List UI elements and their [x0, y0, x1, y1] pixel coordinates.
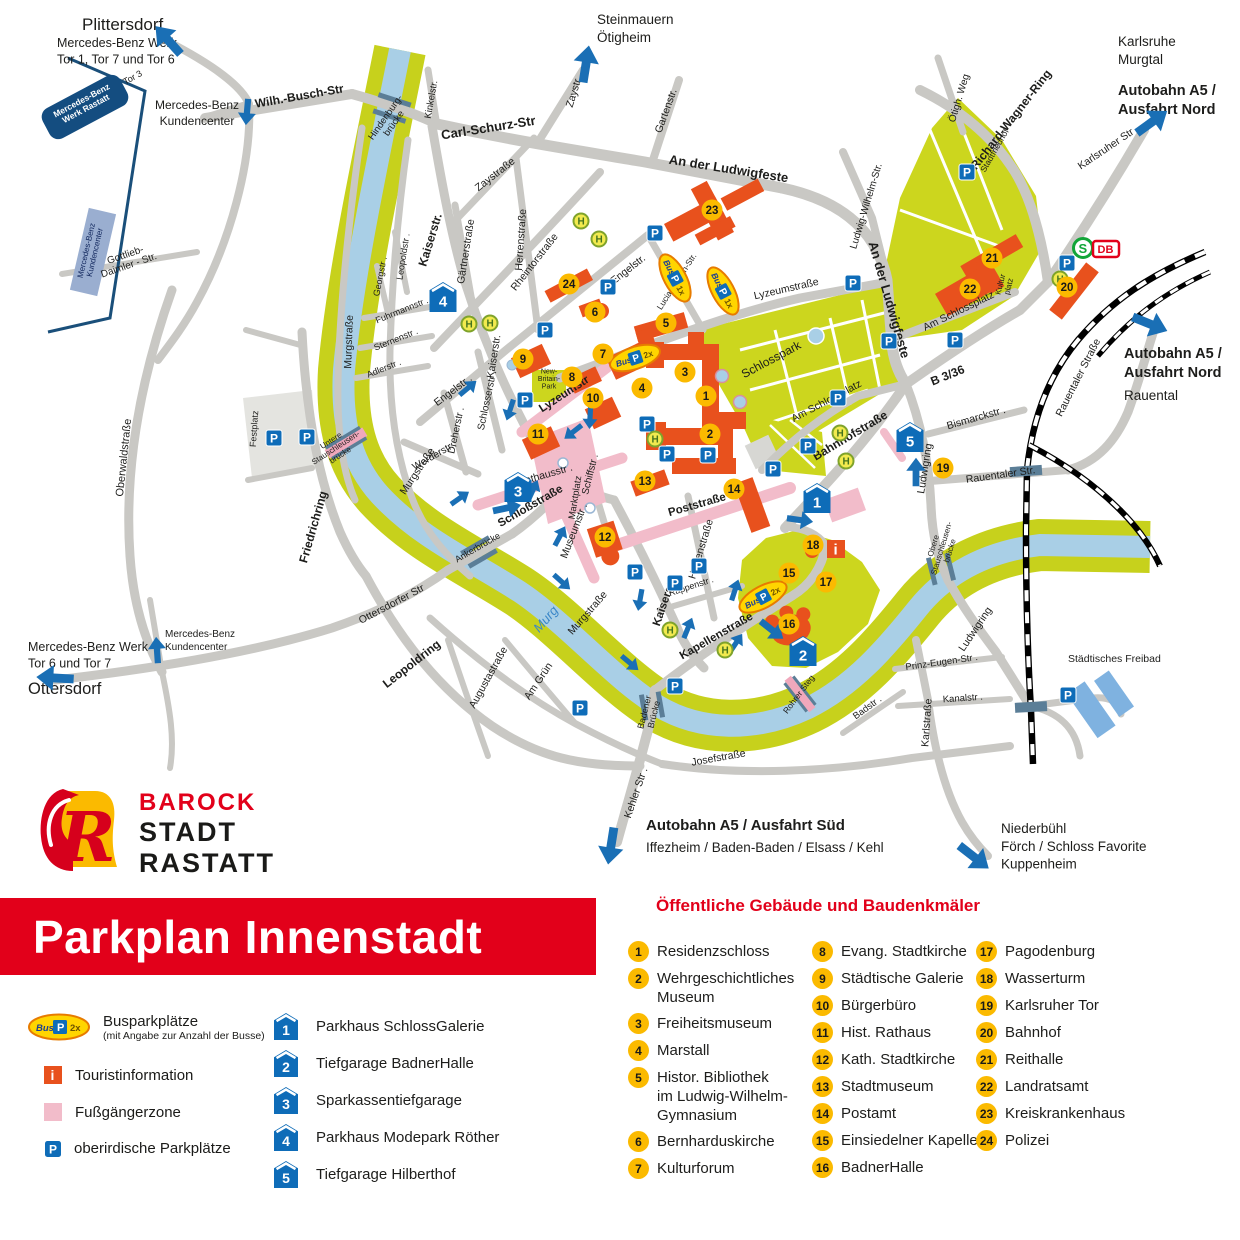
building-number-badge: 4	[628, 1040, 649, 1061]
parking-icon: P	[1059, 255, 1075, 271]
direction-arrow	[447, 486, 474, 511]
poi-marker: 17	[816, 572, 837, 593]
svg-text:P: P	[270, 432, 278, 446]
svg-text:22: 22	[964, 284, 977, 296]
building-number-badge: 10	[812, 995, 833, 1016]
svg-text:2: 2	[799, 648, 807, 665]
building-number-badge: 12	[812, 1049, 833, 1070]
svg-text:H: H	[722, 646, 729, 657]
legend-garages: 1Parkhaus SchlossGalerie2Tiefgarage Badn…	[273, 1008, 499, 1193]
building-name: Evang. Stadtkirche	[841, 941, 967, 961]
poi-marker: 20	[1057, 277, 1078, 298]
legend-garage-label: Tiefgarage BadnerHalle	[316, 1055, 474, 1072]
svg-text:1: 1	[282, 1022, 290, 1038]
legend-parking-label: oberirdische Parkplätze	[74, 1140, 231, 1157]
tourist-info-icon: i	[44, 1066, 62, 1084]
svg-text:3: 3	[682, 367, 688, 379]
street-label: Zaystraße	[473, 155, 518, 194]
building-list-item: 12Kath. Stadtkirche	[812, 1049, 987, 1070]
buildings-column-2: 8Evang. Stadtkirche9Städtische Galerie10…	[812, 941, 987, 1184]
svg-text:P: P	[671, 577, 679, 591]
building-name: Residenzschloss	[657, 941, 770, 961]
svg-text:H: H	[843, 457, 850, 468]
svg-text:P: P	[834, 392, 842, 406]
destination-label: Autobahn A5 /Ausfahrt Nord	[1124, 346, 1222, 381]
parking-garage-icon: 4	[430, 282, 457, 312]
title-band: Parkplan Innenstadt	[0, 898, 596, 975]
building-list-item: 22Landratsamt	[976, 1076, 1166, 1097]
svg-text:2: 2	[282, 1059, 290, 1075]
parking-icon: P	[800, 438, 816, 454]
city-logo: R BAROCK STADT RASTATT	[33, 783, 275, 877]
svg-text:5: 5	[663, 318, 670, 330]
pedestrian-zone-swatch	[44, 1103, 62, 1121]
svg-text:P: P	[541, 324, 549, 338]
svg-text:DB: DB	[1098, 244, 1114, 256]
poi-marker: 6	[585, 302, 606, 323]
building-number-badge: 7	[628, 1158, 649, 1179]
poi-marker: 12	[595, 527, 616, 548]
svg-text:H: H	[578, 217, 585, 228]
svg-text:9: 9	[520, 354, 526, 366]
svg-text:12: 12	[599, 532, 612, 544]
parking-icon: P	[600, 279, 616, 295]
building-number-badge: 8	[812, 941, 833, 962]
building-name: Kath. Stadtkirche	[841, 1049, 955, 1069]
parking-icon: P	[639, 416, 655, 432]
svg-text:P: P	[951, 334, 959, 348]
building-number-badge: 23	[976, 1103, 997, 1124]
poi-marker: 10	[583, 388, 604, 409]
building-name: Bürgerbüro	[841, 995, 916, 1015]
building-name: Einsiedelner Kapelle	[841, 1130, 978, 1150]
svg-text:P: P	[1063, 257, 1071, 271]
svg-text:P: P	[57, 1022, 64, 1034]
bus-parking-icon: Bus P 2x	[28, 1012, 90, 1042]
building-list-item: 21Reithalle	[976, 1049, 1166, 1070]
parking-icon: P	[765, 461, 781, 477]
svg-text:5: 5	[906, 434, 914, 451]
svg-text:P: P	[769, 463, 777, 477]
tourist-info-icon: i	[827, 540, 845, 559]
svg-text:P: P	[1064, 689, 1072, 703]
svg-text:P: P	[704, 449, 712, 463]
building-name: Pagodenburg	[1005, 941, 1095, 961]
destination-label: KarlsruheMurgtal	[1118, 34, 1176, 67]
svg-text:P: P	[885, 335, 893, 349]
parking-icon: P	[830, 390, 846, 406]
street-label: Gartenstr.	[653, 87, 680, 134]
parking-icon: P	[627, 564, 643, 580]
buildings-column-3: 17Pagodenburg18Wasserturm19Karlsruher To…	[976, 941, 1166, 1157]
bus-stop-icon: H	[663, 623, 678, 638]
building-list-item: 16BadnerHalle	[812, 1157, 987, 1178]
buildings-column-1: 1Residenzschloss2Wehrgeschichtliches Mus…	[628, 941, 828, 1185]
building-name: Hist. Rathaus	[841, 1022, 931, 1042]
building-number-badge: 22	[976, 1076, 997, 1097]
svg-text:P: P	[576, 702, 584, 716]
svg-text:1: 1	[703, 391, 710, 403]
building-number-badge: 21	[976, 1049, 997, 1070]
legend-zone: Fußgängerzone	[44, 1103, 181, 1121]
svg-text:15: 15	[783, 568, 796, 580]
destination-label: Städtisches Freibad	[1068, 653, 1161, 665]
legend-info-label: Touristinformation	[75, 1067, 193, 1084]
bus-stop-icon: H	[648, 432, 663, 447]
building-number-badge: 14	[812, 1103, 833, 1124]
bus-stop-icon: H	[833, 426, 848, 441]
destination-label: Mercedes-BenzKundencenter	[155, 98, 239, 128]
building-number-badge: 3	[628, 1013, 649, 1034]
street-label: Tor 3	[121, 68, 143, 86]
street-label: Rauentaler Straße	[1054, 337, 1104, 419]
building-name: Wasserturm	[1005, 968, 1085, 988]
legend-garage-row: 4Parkhaus Modepark Röther	[273, 1119, 499, 1156]
building-name: Landratsamt	[1005, 1076, 1088, 1096]
svg-text:16: 16	[783, 619, 796, 631]
poi-marker: 1	[696, 386, 717, 407]
svg-text:P: P	[631, 566, 639, 580]
parking-icon: P	[667, 575, 683, 591]
svg-text:3: 3	[282, 1096, 290, 1112]
buildings-header: Öffentliche Gebäude und Baudenkmäler	[656, 896, 980, 916]
destination-label: Plittersdorf	[82, 15, 164, 34]
logo-line2: STADT	[139, 819, 275, 846]
svg-text:19: 19	[937, 463, 950, 475]
building-name: Städtische Galerie	[841, 968, 964, 988]
poi-marker: 3	[675, 362, 696, 383]
svg-text:H: H	[487, 319, 494, 330]
svg-text:P: P	[643, 418, 651, 432]
parking-icon: P	[266, 430, 282, 446]
legend-garage-label: Sparkassentiefgarage	[316, 1092, 462, 1109]
parking-icon: P	[537, 322, 553, 338]
svg-text:23: 23	[706, 205, 719, 217]
building-number-badge: 11	[812, 1022, 833, 1043]
legend-garage-row: 2Tiefgarage BadnerHalle	[273, 1045, 499, 1082]
parking-garage-icon: 5	[273, 1160, 299, 1189]
building-list-item: 6Bernharduskirche	[628, 1131, 828, 1152]
building-name: Bernharduskirche	[657, 1131, 775, 1151]
svg-text:P: P	[604, 281, 612, 295]
svg-text:i: i	[834, 542, 838, 559]
parking-icon: P	[947, 332, 963, 348]
building-list-item: 3Freiheitsmuseum	[628, 1013, 828, 1034]
street-label: Friedrichring	[296, 489, 330, 564]
svg-text:P: P	[804, 440, 812, 454]
svg-text:H: H	[667, 626, 674, 637]
svg-text:1: 1	[813, 495, 821, 512]
destination-label: Mercedes-BenzKundencenter	[165, 629, 235, 653]
svg-text:8: 8	[569, 372, 576, 384]
poi-marker: 16	[779, 614, 800, 635]
poi-marker: 18	[803, 535, 824, 556]
building-list-item: 19Karlsruher Tor	[976, 995, 1166, 1016]
poi-marker: 22	[960, 279, 981, 300]
building-list-item: 9Städtische Galerie	[812, 968, 987, 989]
building-number-badge: 17	[976, 941, 997, 962]
parkplan-poster: Wilh.-Busch-StrHindenburg-brückeCarl-Sch…	[0, 0, 1240, 1240]
building-name: Kulturforum	[657, 1158, 735, 1178]
poi-marker: 23	[702, 200, 723, 221]
svg-text:7: 7	[600, 349, 606, 361]
direction-arrow	[631, 588, 650, 612]
svg-text:17: 17	[820, 577, 833, 589]
destination-label: Rauental	[1124, 388, 1178, 403]
poi-marker: 5	[656, 313, 677, 334]
poi-marker: 24	[559, 274, 580, 295]
destination-label: SteinmauernÖtigheim	[597, 12, 674, 45]
poi-marker: 7	[593, 344, 614, 365]
legend-garage-row: 3Sparkassentiefgarage	[273, 1082, 499, 1119]
building-list-item: 24Polizei	[976, 1130, 1166, 1151]
legend-bus-sub: (mit Angabe zur Anzahl der Busse)	[103, 1030, 265, 1042]
bus-stop-icon: H	[483, 316, 498, 331]
destination-label: Iffezheim / Baden-Baden / Elsass / Kehl	[646, 840, 884, 855]
building-number-badge: 16	[812, 1157, 833, 1178]
building-list-item: 7Kulturforum	[628, 1158, 828, 1179]
svg-text:P: P	[663, 448, 671, 462]
building-list-item: 8Evang. Stadtkirche	[812, 941, 987, 962]
building-list-item: 2Wehrgeschichtliches Museum	[628, 968, 828, 1007]
svg-text:5: 5	[282, 1170, 290, 1186]
parking-garage-icon: 2	[274, 1050, 298, 1077]
building-list-item: 18Wasserturm	[976, 968, 1166, 989]
legend-garage-label: Parkhaus SchlossGalerie	[316, 1018, 484, 1035]
building-list-item: 14Postamt	[812, 1103, 987, 1124]
bus-stop-icon: H	[839, 454, 854, 469]
svg-text:H: H	[596, 235, 603, 246]
building-number-badge: 15	[812, 1130, 833, 1151]
poi-marker: 15	[779, 563, 800, 584]
parking-icon: P	[517, 392, 533, 408]
building-number-badge: 9	[812, 968, 833, 989]
logo-line1: BAROCK	[139, 791, 275, 815]
building-name: Marstall	[657, 1040, 710, 1060]
building-name: Karlsruher Tor	[1005, 995, 1099, 1015]
building-name: Kreiskrankenhaus	[1005, 1103, 1125, 1123]
svg-text:13: 13	[639, 476, 652, 488]
building-name: Stadtmuseum	[841, 1076, 934, 1096]
building-name: Reithalle	[1005, 1049, 1063, 1069]
building-list-item: 11Hist. Rathaus	[812, 1022, 987, 1043]
legend-bus: Bus P 2x Busparkplätze (mit Angabe zur A…	[28, 1012, 265, 1042]
svg-text:4: 4	[282, 1133, 290, 1149]
svg-text:4: 4	[639, 383, 646, 395]
poi-marker: 4	[632, 378, 653, 399]
bus-stop-icon: H	[574, 214, 589, 229]
svg-text:11: 11	[532, 429, 545, 441]
svg-text:24: 24	[563, 279, 576, 291]
street-labels-layer: Wilh.-Busch-StrHindenburg-brückeCarl-Sch…	[28, 12, 1222, 872]
legend-garage-row: 5Tiefgarage Hilberthof	[273, 1156, 499, 1193]
building-name: Polizei	[1005, 1130, 1049, 1150]
parking-icon: P	[881, 333, 897, 349]
logo-letter: R	[57, 798, 116, 875]
building-list-item: 17Pagodenburg	[976, 941, 1166, 962]
poi-marker: 2	[700, 424, 721, 445]
poi-marker: 9	[513, 349, 534, 370]
page-title: Parkplan Innenstadt	[0, 910, 482, 964]
svg-text:i: i	[51, 1067, 55, 1083]
poi-marker: 19	[933, 458, 954, 479]
svg-text:H: H	[652, 435, 659, 446]
svg-text:P: P	[695, 560, 703, 574]
building-list-item: 23Kreiskrankenhaus	[976, 1103, 1166, 1124]
destination-label: Autobahn A5 / Ausfahrt Süd	[646, 817, 845, 834]
parking-icon: P	[1060, 687, 1076, 703]
building-list-item: 15Einsiedelner Kapelle	[812, 1130, 987, 1151]
parking-garage-icon: 1	[274, 1013, 298, 1040]
building-list-item: 20Bahnhof	[976, 1022, 1166, 1043]
legend-zone-label: Fußgängerzone	[75, 1104, 181, 1121]
building-number-badge: 1	[628, 941, 649, 962]
legend-garage-label: Tiefgarage Hilberthof	[316, 1166, 456, 1183]
svg-text:P: P	[49, 1142, 57, 1156]
parking-icon: P	[700, 447, 716, 463]
street-label: Kaiserstr.	[415, 212, 444, 268]
bus-stop-icon: H	[462, 317, 477, 332]
svg-text:H: H	[837, 429, 844, 440]
street-label: Bismarckstr .	[945, 404, 1007, 432]
legend-garage-row: 1Parkhaus SchlossGalerie	[273, 1008, 499, 1045]
poi-marker: 14	[724, 479, 745, 500]
building-number-badge: 18	[976, 968, 997, 989]
svg-text:P: P	[651, 227, 659, 241]
building-number-badge: 24	[976, 1130, 997, 1151]
svg-text:H: H	[466, 320, 473, 331]
parking-icon: P	[647, 225, 663, 241]
street-label: Murgstraße	[342, 315, 356, 369]
logo-glyph: R	[33, 783, 125, 875]
building-name: Histor. Bibliothek im Ludwig-Wilhelm- Gy…	[657, 1067, 788, 1125]
destination-label: NiederbühlFörch / Schloss FavoriteKuppen…	[1001, 821, 1147, 872]
building-name: Freiheitsmuseum	[657, 1013, 772, 1033]
building-list-item: 13Stadtmuseum	[812, 1076, 987, 1097]
building-number-badge: 13	[812, 1076, 833, 1097]
svg-text:21: 21	[986, 253, 999, 265]
building-list-item: 4Marstall	[628, 1040, 828, 1061]
building-number-badge: 20	[976, 1022, 997, 1043]
svg-text:P: P	[671, 680, 679, 694]
parking-icon: P	[959, 164, 975, 180]
building-list-item: 1Residenzschloss	[628, 941, 828, 962]
poi-marker: 21	[982, 248, 1003, 269]
parking-icon: P	[572, 700, 588, 716]
building-number-badge: 6	[628, 1131, 649, 1152]
logo-line3: RASTATT	[139, 850, 275, 877]
building-number-badge: 5	[628, 1067, 649, 1088]
svg-text:P: P	[303, 431, 311, 445]
building-number-badge: 19	[976, 995, 997, 1016]
parking-garage-icon: 4	[274, 1124, 298, 1151]
parking-icon: P	[845, 275, 861, 291]
freibad-buildings	[1067, 666, 1137, 738]
svg-text:2: 2	[707, 429, 713, 441]
parking-icon: P	[299, 429, 315, 445]
parking-garage-icon: 2	[273, 1049, 299, 1078]
bus-parking-icon: BusP1x	[701, 263, 745, 319]
parking-garage-icon: 3	[274, 1087, 298, 1114]
svg-text:S: S	[1079, 241, 1088, 256]
building-name: BadnerHalle	[841, 1157, 924, 1177]
svg-text:P: P	[849, 277, 857, 291]
parking-garage-icon: 1	[273, 1012, 299, 1041]
svg-text:2x: 2x	[70, 1023, 81, 1034]
sbahn-icon: S	[1074, 239, 1093, 258]
parking-garage-icon: 4	[273, 1123, 299, 1152]
svg-text:P: P	[963, 166, 971, 180]
poi-marker: 13	[635, 471, 656, 492]
parking-icon: P	[667, 678, 683, 694]
svg-text:Bus: Bus	[36, 1023, 54, 1034]
building-name: Bahnhof	[1005, 1022, 1061, 1042]
bus-stop-icon: H	[718, 643, 733, 658]
building-list-item: 10Bürgerbüro	[812, 995, 987, 1016]
svg-text:3: 3	[514, 484, 522, 501]
legend-parking: P oberirdische Parkplätze	[45, 1140, 231, 1157]
poi-marker: 11	[528, 424, 549, 445]
building-name: Postamt	[841, 1103, 896, 1123]
svg-text:P: P	[521, 394, 529, 408]
destination-label: Autobahn A5 /Ausfahrt Nord	[1118, 83, 1216, 118]
svg-text:18: 18	[807, 540, 820, 552]
building-list-item: 5Histor. Bibliothek im Ludwig-Wilhelm- G…	[628, 1067, 828, 1125]
db-icon: DB	[1093, 241, 1119, 257]
parking-garage-icon: 3	[273, 1086, 299, 1115]
building-number-badge: 2	[628, 968, 649, 989]
legend-garage-label: Parkhaus Modepark Röther	[316, 1129, 499, 1146]
surface-parking-icon: P	[45, 1141, 61, 1157]
svg-text:6: 6	[592, 307, 598, 319]
poi-marker: 8	[562, 367, 583, 388]
svg-text:10: 10	[587, 393, 600, 405]
legend-info: i Touristinformation	[44, 1066, 193, 1084]
building-name: Wehrgeschichtliches Museum	[657, 968, 794, 1007]
svg-text:20: 20	[1061, 282, 1074, 294]
legend-bus-label: Busparkplätze	[103, 1013, 265, 1030]
bus-stop-icon: H	[592, 232, 607, 247]
parking-icon: P	[659, 446, 675, 462]
svg-text:14: 14	[728, 484, 741, 496]
parking-icon: P	[691, 558, 707, 574]
parking-garage-icon: 5	[274, 1161, 298, 1188]
svg-text:4: 4	[439, 294, 448, 311]
